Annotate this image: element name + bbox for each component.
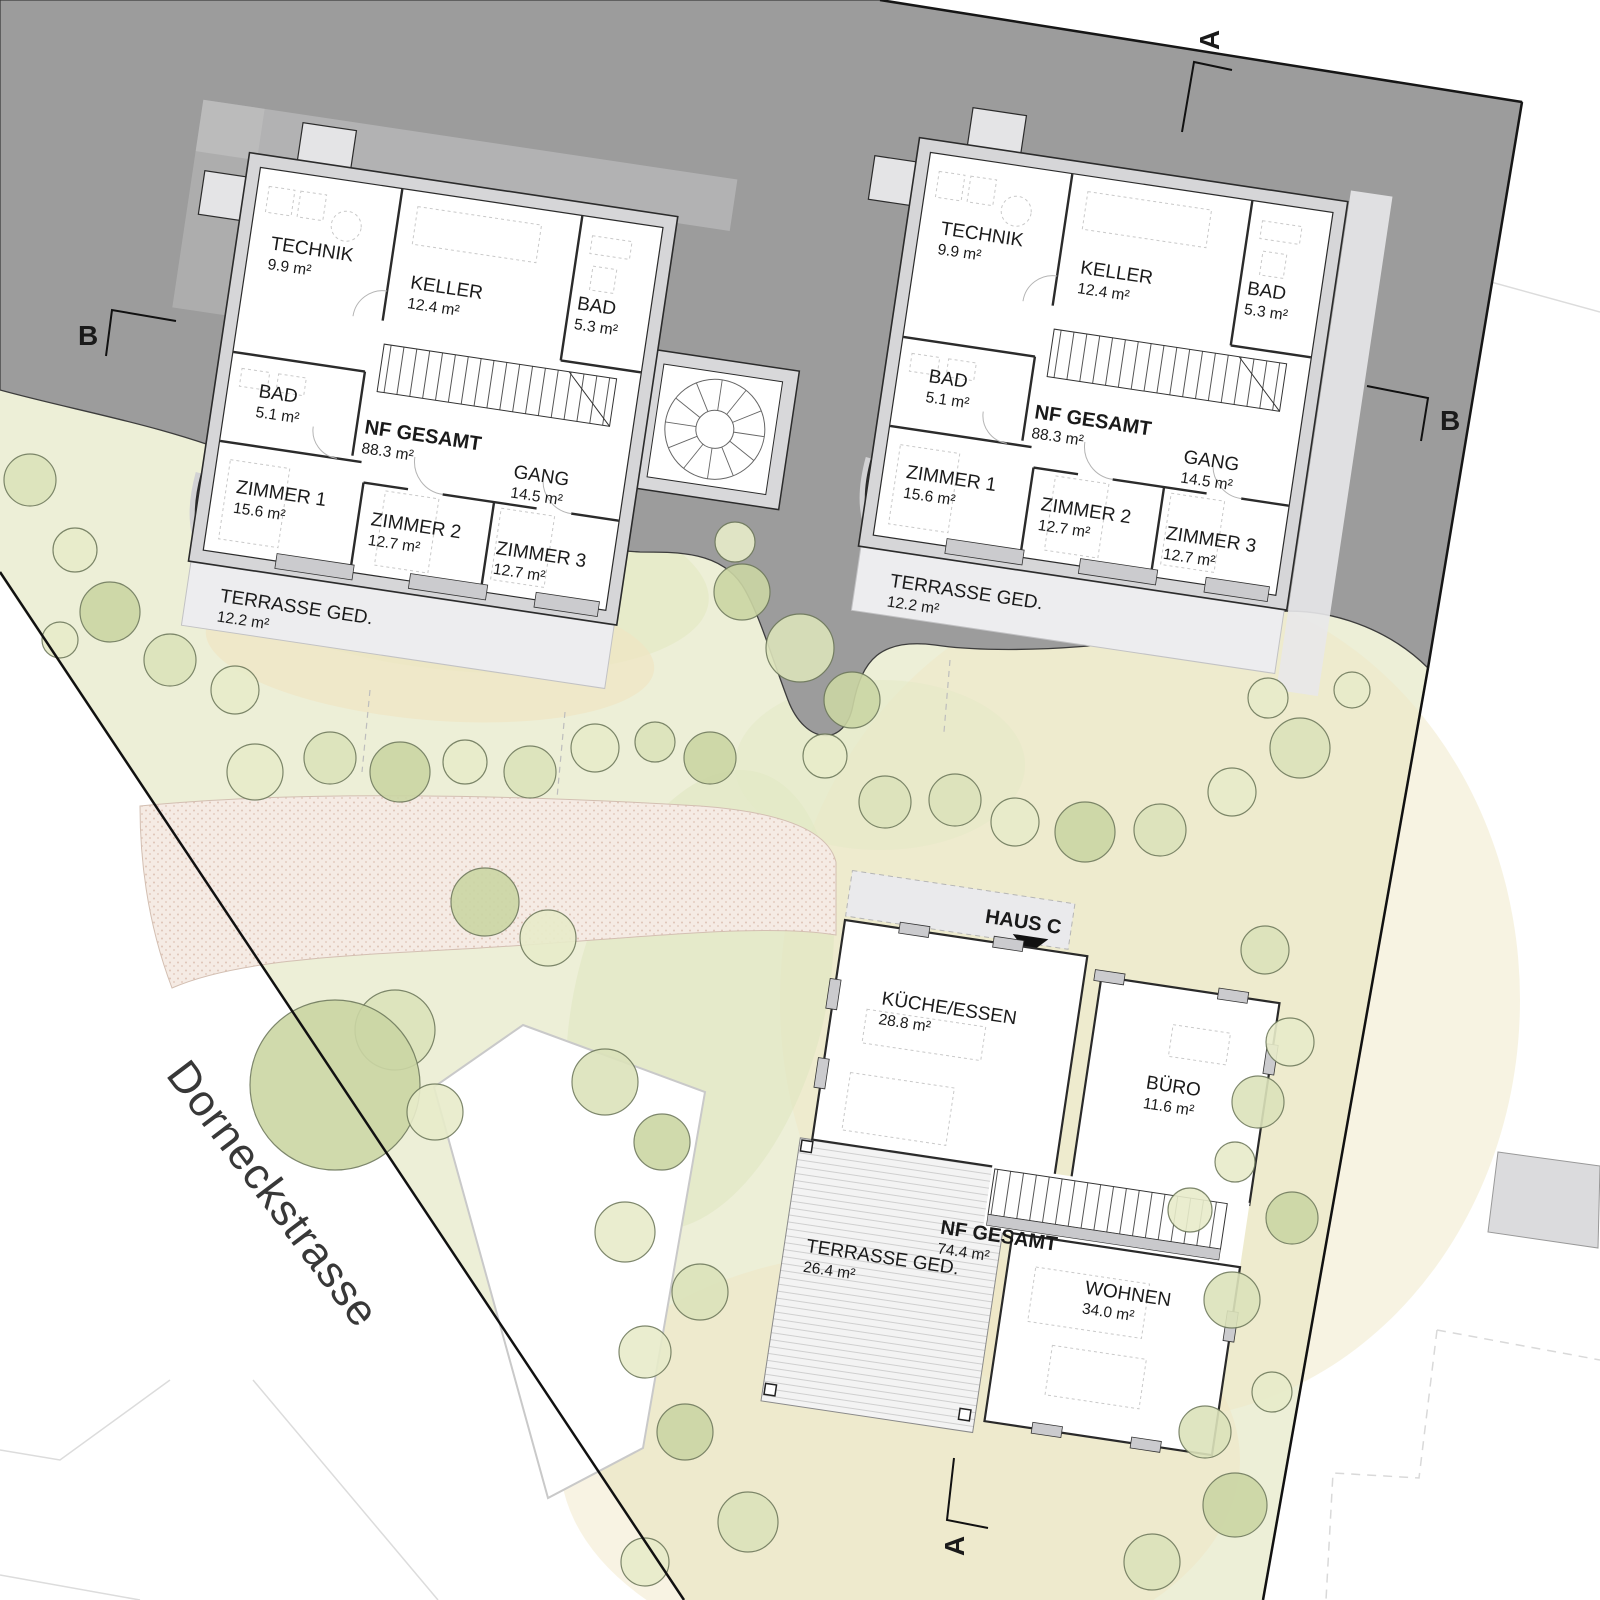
section-marker-a-top: A	[1194, 30, 1225, 50]
site-plan-drawing: TECHNIK 9.9 m² KELLER 12.4 m² BAD 5.3 m²…	[0, 0, 1600, 1600]
site-plan-page: TECHNIK 9.9 m² KELLER 12.4 m² BAD 5.3 m²…	[0, 0, 1600, 1600]
section-marker-a-bottom: A	[939, 1536, 970, 1556]
haus-c-terrace-deck	[761, 1138, 1012, 1433]
neighbour-building	[1488, 1152, 1600, 1248]
spiral-stair	[630, 349, 799, 510]
section-marker-b-right: B	[1440, 405, 1460, 436]
section-marker-b-left: B	[78, 320, 98, 351]
